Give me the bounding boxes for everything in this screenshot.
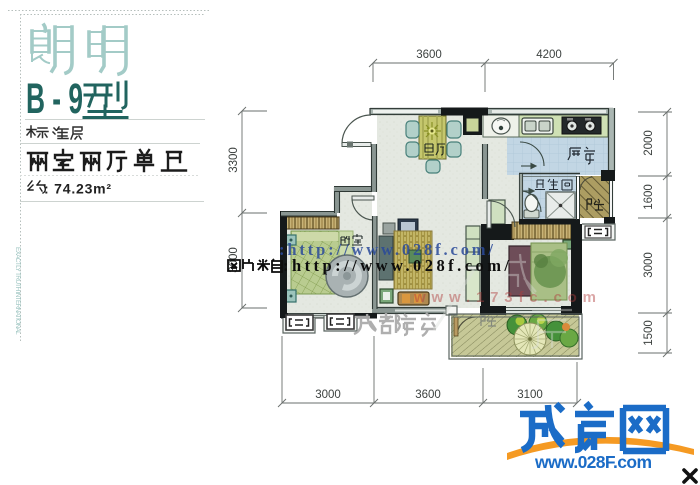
svg-text:3600: 3600 <box>416 49 442 61</box>
svg-text:3000: 3000 <box>315 389 341 401</box>
svg-text:B - 9: B - 9 <box>26 75 83 123</box>
svg-text:2000: 2000 <box>643 130 655 156</box>
svg-text:3300: 3300 <box>228 147 240 173</box>
svg-text:1500: 1500 <box>643 320 655 346</box>
svg-text:4200: 4200 <box>536 49 562 61</box>
svg-text:3000: 3000 <box>643 252 655 278</box>
svg-text::http://www.028f.com/: :http://www.028f.com/ <box>283 256 509 275</box>
svg-text:www.173fc.com: www.173fc.com <box>413 289 596 306</box>
svg-text:1600: 1600 <box>643 184 655 210</box>
svg-text:3600: 3600 <box>415 389 441 401</box>
svg-text:EXACTLY TRUTH INTERNATIONAL: EXACTLY TRUTH INTERNATIONAL <box>14 247 21 335</box>
svg-text:3100: 3100 <box>517 389 543 401</box>
svg-text:www.028F.com: www.028F.com <box>534 452 652 472</box>
svg-text:: 74.23m²: : 74.23m² <box>44 181 112 197</box>
